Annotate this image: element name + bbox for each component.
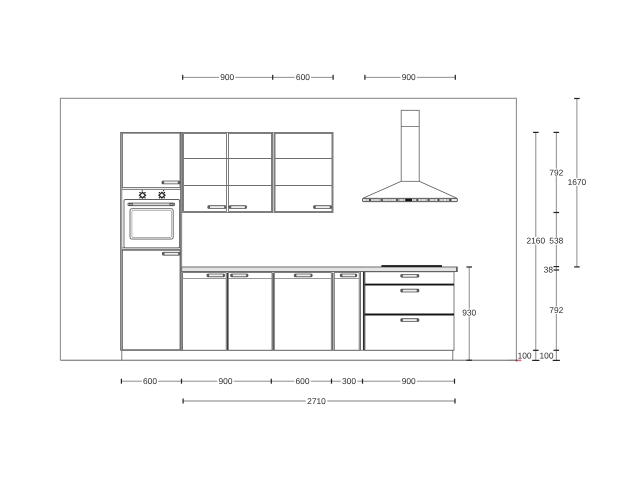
svg-text:1670: 1670 bbox=[568, 177, 587, 187]
svg-text:600: 600 bbox=[296, 376, 310, 386]
svg-text:100: 100 bbox=[518, 350, 532, 360]
svg-text:2710: 2710 bbox=[307, 396, 326, 406]
svg-text:100: 100 bbox=[540, 350, 554, 360]
svg-text:900: 900 bbox=[220, 72, 234, 82]
svg-text:300: 300 bbox=[342, 376, 356, 386]
svg-text:38: 38 bbox=[544, 264, 554, 274]
svg-text:600: 600 bbox=[143, 376, 157, 386]
svg-text:900: 900 bbox=[219, 376, 233, 386]
svg-text:900: 900 bbox=[402, 376, 416, 386]
svg-text:600: 600 bbox=[296, 72, 310, 82]
svg-text:538: 538 bbox=[549, 236, 563, 246]
svg-text:900: 900 bbox=[402, 72, 416, 82]
svg-text:792: 792 bbox=[549, 305, 563, 315]
svg-text:792: 792 bbox=[549, 167, 563, 177]
svg-text:930: 930 bbox=[462, 307, 476, 317]
svg-text:2160: 2160 bbox=[526, 236, 545, 246]
